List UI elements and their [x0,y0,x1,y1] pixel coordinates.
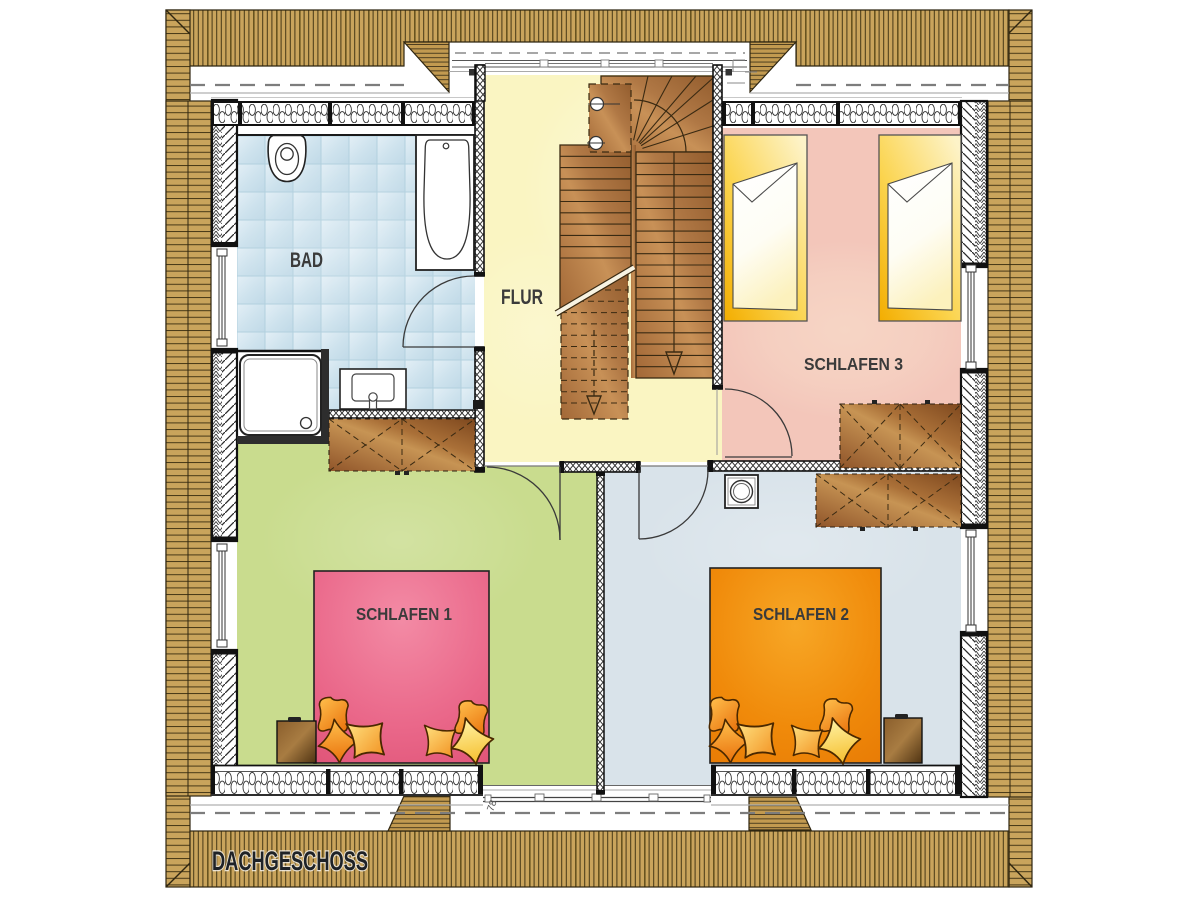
svg-text:FLUR: FLUR [501,286,543,309]
svg-text:78: 78 [485,798,499,813]
svg-text:SCHLAFEN 3: SCHLAFEN 3 [804,354,903,374]
svg-text:SCHLAFEN 1: SCHLAFEN 1 [356,604,452,624]
svg-text:DACHGESCHOSS: DACHGESCHOSS [212,846,368,876]
svg-text:SCHLAFEN 2: SCHLAFEN 2 [753,604,849,624]
svg-text:BAD: BAD [290,249,323,272]
